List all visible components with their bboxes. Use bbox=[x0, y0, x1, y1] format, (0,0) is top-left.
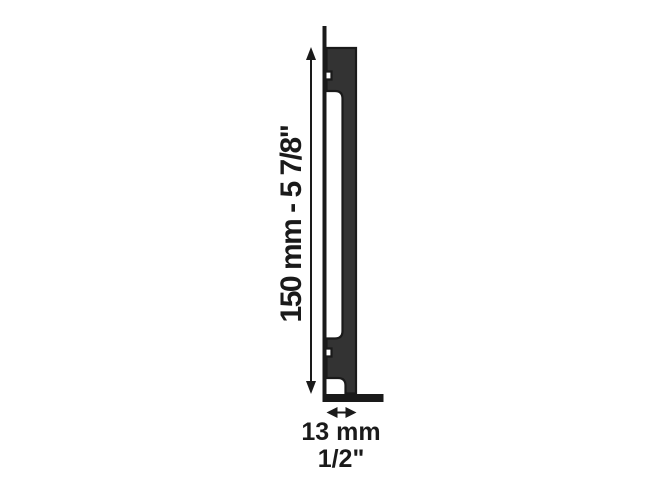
depth-dimension-label-inches: 1/2" bbox=[318, 445, 365, 473]
dimension-diagram-canvas: 150 mm - 5 7/8" 13 mm 1/2" bbox=[0, 0, 666, 500]
bracket-foot-flange bbox=[323, 394, 384, 402]
arrowhead-down-icon bbox=[306, 381, 316, 394]
bracket-side-profile bbox=[327, 48, 357, 394]
arrowhead-left-icon bbox=[327, 407, 338, 418]
arrowhead-up-icon bbox=[306, 47, 316, 60]
arrowhead-right-icon bbox=[346, 407, 357, 418]
depth-dimension-label-mm: 13 mm bbox=[301, 418, 380, 446]
height-dimension-label: 150 mm - 5 7/8" bbox=[275, 125, 308, 322]
bracket-dimension-diagram: 150 mm - 5 7/8" 13 mm 1/2" bbox=[0, 0, 666, 500]
horizontal-dimension-arrow bbox=[327, 407, 357, 418]
